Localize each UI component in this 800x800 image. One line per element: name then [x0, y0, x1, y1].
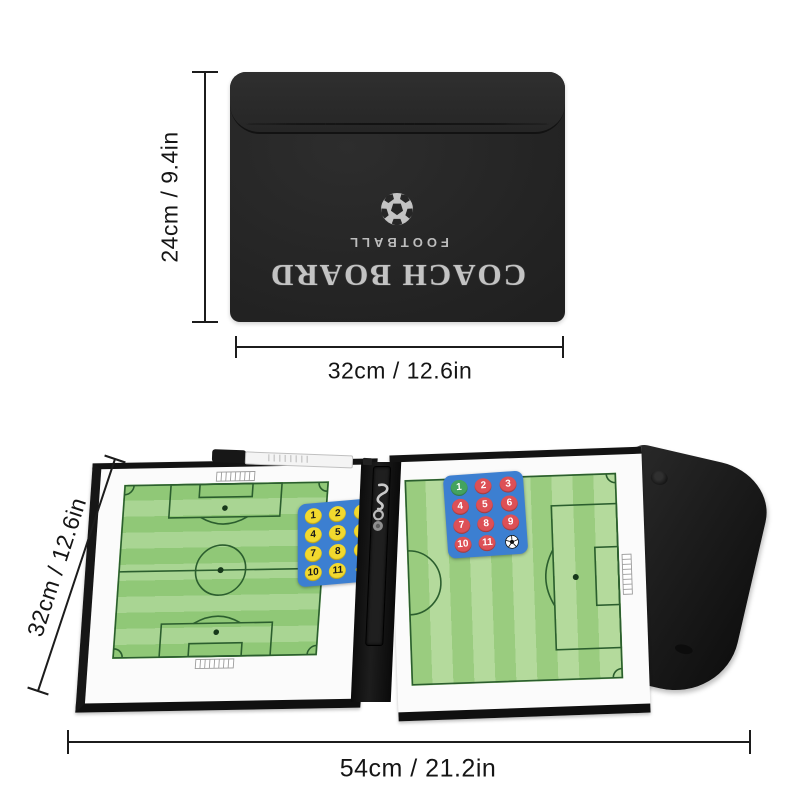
player-number-pad-red: 1234567891011	[443, 470, 529, 558]
metal-clasp-icon	[363, 482, 395, 534]
soccer-ball-icon	[379, 190, 417, 228]
player-number-disc: 7	[305, 545, 322, 562]
case-flap	[230, 72, 565, 134]
player-number-disc: 1	[450, 479, 468, 496]
player-number-disc: 10	[454, 536, 472, 553]
goal-comb-top	[216, 471, 255, 481]
left-pitch-markings	[112, 481, 329, 659]
player-number-disc: 3	[499, 476, 517, 493]
brand-title: COACH BOARD	[269, 257, 526, 293]
player-number-disc: 1	[305, 508, 322, 525]
pen-cap	[212, 449, 246, 463]
player-number-disc: 5	[476, 497, 494, 514]
player-number-disc: 6	[500, 495, 518, 512]
player-number-disc: 4	[305, 527, 322, 544]
snap-button-shadow	[674, 643, 694, 656]
board-width-label: 54cm / 21.2in	[340, 755, 497, 784]
player-number-disc: 8	[329, 543, 346, 560]
pen-grip	[268, 454, 310, 463]
soccer-ball-icon	[503, 533, 521, 550]
player-number-disc: 2	[475, 478, 493, 495]
player-number-disc: 8	[477, 516, 495, 533]
goal-comb-bottom	[195, 659, 234, 669]
player-number-disc: 4	[451, 498, 469, 515]
player-number-disc: 7	[453, 517, 471, 534]
player-number-disc: 9	[502, 514, 520, 531]
case-width-label: 32cm / 12.6in	[328, 358, 473, 385]
board-left-panel: 1234567891011	[75, 458, 377, 712]
snap-button	[649, 469, 669, 486]
left-pitch	[112, 481, 329, 659]
pen-tip	[363, 458, 372, 465]
player-number-disc: 10	[305, 564, 322, 581]
player-number-disc: 2	[329, 505, 346, 522]
player-number-disc: 5	[329, 524, 346, 541]
closed-coach-board-case: COACH BOARD FOOTBALL	[230, 72, 565, 322]
brand-subtitle: FOOTBALL	[346, 235, 449, 250]
case-height-label: 24cm / 9.4in	[157, 131, 184, 262]
board-right-panel: 1234567891011	[389, 447, 650, 722]
stitch-line	[246, 123, 549, 125]
player-number-disc: 11	[478, 535, 496, 552]
goal-comb-right	[622, 554, 632, 594]
case-print: COACH BOARD FOOTBALL	[230, 190, 565, 293]
product-dimension-diagram: 24cm / 9.4in 32cm / 12.6in 32cm / 12.6in…	[0, 0, 800, 800]
player-number-disc: 11	[329, 562, 346, 579]
